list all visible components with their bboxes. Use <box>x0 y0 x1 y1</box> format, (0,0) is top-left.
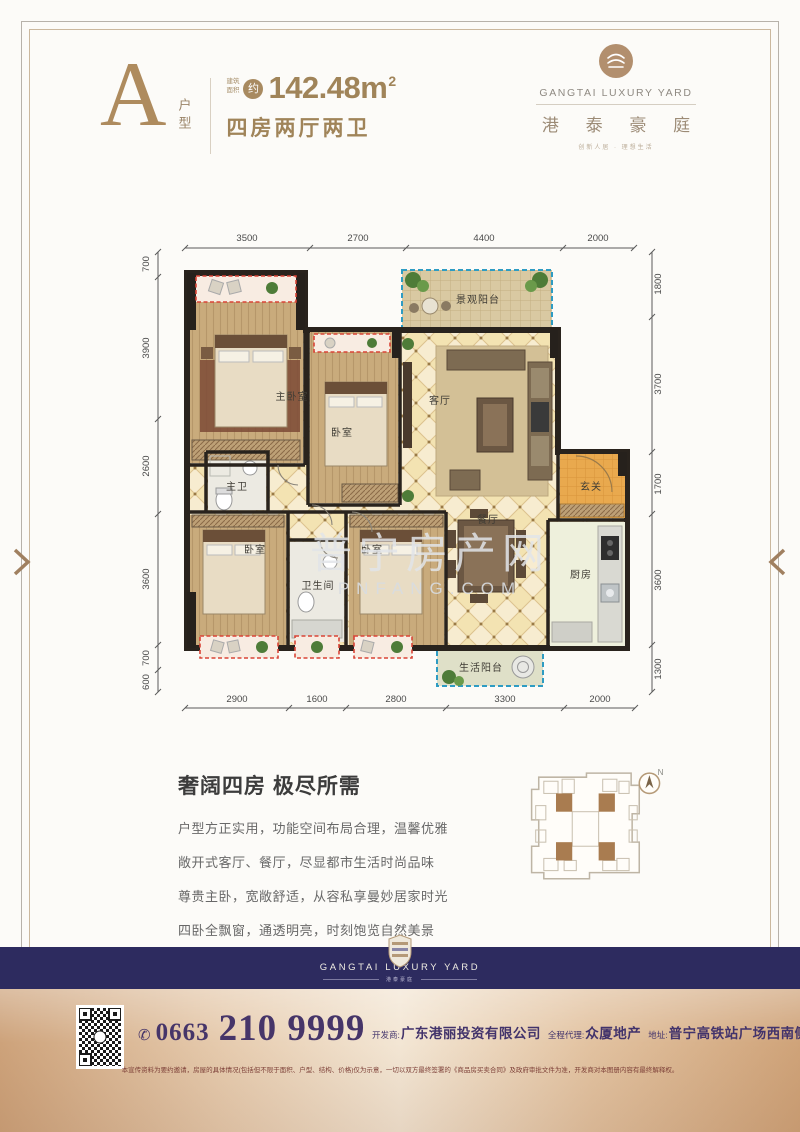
label-bathroom: 卫生间 <box>302 579 335 592</box>
compass-north-label: N <box>658 768 664 777</box>
svg-text:1600: 1600 <box>306 694 327 705</box>
flyer-page: A 户型 建筑面积 约 142.48m 2 四房两厅两卫 GANGTAI LUX… <box>0 0 800 1132</box>
description-line: 敞开式客厅、餐厅，尽显都市生活时尚品味 <box>178 852 513 871</box>
floorplan: 主卧室 卧室 主卫 客厅 景观阳台 玄关 餐厅 厨房 卫生间 卧室 卧室 生活阳… <box>130 210 690 740</box>
unit-letter: A <box>100 52 166 154</box>
disclaimer: 本宣传资料为要约邀请，房屋的具体情况(包括但不限于面积、户型、结构、价格)仅为示… <box>100 1064 700 1074</box>
phone-number: 210 9999 <box>219 1007 366 1050</box>
svg-text:2700: 2700 <box>347 233 368 244</box>
phone-area-code: 0663 <box>156 1019 210 1047</box>
phone-icon: ✆ <box>138 1026 151 1044</box>
svg-text:2600: 2600 <box>141 455 152 476</box>
brand-band-rule-left <box>323 979 379 980</box>
developer-info: 开发商: 广东港丽投资有限公司 全程代理: 众厦地产 地址: 普宁高铁站广场西南… <box>372 1022 800 1042</box>
label-bedroom-left: 卧室 <box>244 543 266 556</box>
description-line: 四卧全飘窗，通透明亮，时刻饱览自然美景 <box>178 920 513 939</box>
svg-text:2000: 2000 <box>589 694 610 705</box>
dims-top: 3500 2700 4400 2000 <box>182 233 637 251</box>
description-section: 奢阔四房 极尽所需 户型方正实用，功能空间布局合理，温馨优雅 敞开式客厅、餐厅，… <box>178 770 513 954</box>
brand-tagline: 创新人居 · 理想生活 <box>528 142 704 151</box>
qr-code <box>76 1005 124 1069</box>
next-arrow-icon[interactable] <box>767 546 789 578</box>
agent-name: 众厦地产 <box>585 1022 641 1042</box>
floorplan-svg: 主卧室 卧室 主卫 客厅 景观阳台 玄关 餐厅 厨房 卫生间 卧室 卧室 生活阳… <box>130 210 690 740</box>
unit-type-label: 户型 <box>174 98 193 154</box>
label-foyer: 玄关 <box>580 480 602 493</box>
label-view-balcony: 景观阳台 <box>456 293 500 306</box>
label-life-balcony: 生活阳台 <box>459 661 503 674</box>
address-label: 地址: <box>648 1029 667 1041</box>
area-value: 142.48m <box>268 72 387 103</box>
svg-text:PNFANG.COM: PNFANG.COM <box>338 579 522 598</box>
svg-text:3500: 3500 <box>236 233 257 244</box>
layout-label: 四房两厅两卫 <box>226 112 396 142</box>
svg-text:1800: 1800 <box>653 273 664 294</box>
label-master-bedroom: 主卧室 <box>276 390 309 403</box>
approx-badge: 约 <box>243 79 263 99</box>
unit-info: A 户型 建筑面积 约 142.48m 2 四房两厅两卫 <box>100 52 396 154</box>
watermark: 普宁房产网 PNFANG.COM <box>310 530 550 598</box>
svg-text:4400: 4400 <box>473 233 494 244</box>
dims-bottom: 2900 1600 2800 3300 2000 <box>182 694 638 711</box>
svg-text:700: 700 <box>141 256 152 272</box>
dims-right: 1800 3700 1700 3600 1300 <box>649 249 664 695</box>
svg-text:3300: 3300 <box>494 694 515 705</box>
brand-rule <box>536 104 696 105</box>
area-block: 建筑面积 约 142.48m 2 四房两厅两卫 <box>226 72 396 154</box>
svg-text:3700: 3700 <box>653 373 664 394</box>
svg-text:2900: 2900 <box>226 694 247 705</box>
label-living: 客厅 <box>429 394 451 407</box>
svg-text:1700: 1700 <box>653 473 664 494</box>
contact-band: ✆ 0663 210 9999 开发商: 广东港丽投资有限公司 全程代理: 众厦… <box>0 989 800 1132</box>
label-dining: 餐厅 <box>477 513 499 526</box>
brand-name-cn: 港 泰 豪 庭 <box>528 111 704 136</box>
svg-text:1300: 1300 <box>653 658 664 679</box>
svg-text:3600: 3600 <box>653 569 664 590</box>
svg-text:3900: 3900 <box>141 337 152 358</box>
site-keyplan: N <box>512 765 667 897</box>
brand-logo: GANGTAI LUXURY YARD 港 泰 豪 庭 创新人居 · 理想生活 <box>528 44 704 151</box>
svg-text:3600: 3600 <box>141 568 152 589</box>
phone-block: ✆ 0663 210 9999 <box>138 1007 365 1050</box>
area-superscript: 2 <box>388 73 396 89</box>
brand-name-en: GANGTAI LUXURY YARD <box>528 87 704 99</box>
brand-band-logo-sub: 港泰豪庭 <box>386 976 414 983</box>
label-bedroom-top: 卧室 <box>331 426 353 439</box>
label-master-bath: 主卫 <box>226 481 248 493</box>
area-prefix-label: 建筑面积 <box>226 78 241 96</box>
crest-icon <box>388 934 412 973</box>
label-kitchen: 厨房 <box>570 568 592 581</box>
svg-text:2000: 2000 <box>587 233 608 244</box>
svg-text:2800: 2800 <box>385 694 406 705</box>
compass-icon: N <box>639 768 663 793</box>
developer-label: 开发商: <box>372 1029 400 1041</box>
developer-name: 广东港丽投资有限公司 <box>401 1022 541 1042</box>
description-line: 户型方正实用，功能空间布局合理，温馨优雅 <box>178 818 513 837</box>
dims-left: 700 3900 2600 3600 700 600 <box>141 249 161 695</box>
svg-text:700: 700 <box>141 650 152 666</box>
agent-label: 全程代理: <box>548 1029 584 1041</box>
brand-band: GANGTAI LUXURY YARD 港泰豪庭 <box>0 947 800 989</box>
description-title: 奢阔四房 极尽所需 <box>178 770 513 800</box>
description-line: 尊贵主卧，宽敞舒适，从容私享曼妙居家时光 <box>178 886 513 905</box>
svg-text:600: 600 <box>141 674 152 690</box>
header-divider <box>210 78 211 154</box>
brand-band-rule-right <box>421 979 477 980</box>
address-value: 普宁高铁站广场西南侧 <box>669 1022 800 1042</box>
brand-emblem-icon <box>599 44 633 78</box>
svg-text:普宁房产网: 普宁房产网 <box>310 530 550 577</box>
prev-arrow-icon[interactable] <box>10 546 32 578</box>
